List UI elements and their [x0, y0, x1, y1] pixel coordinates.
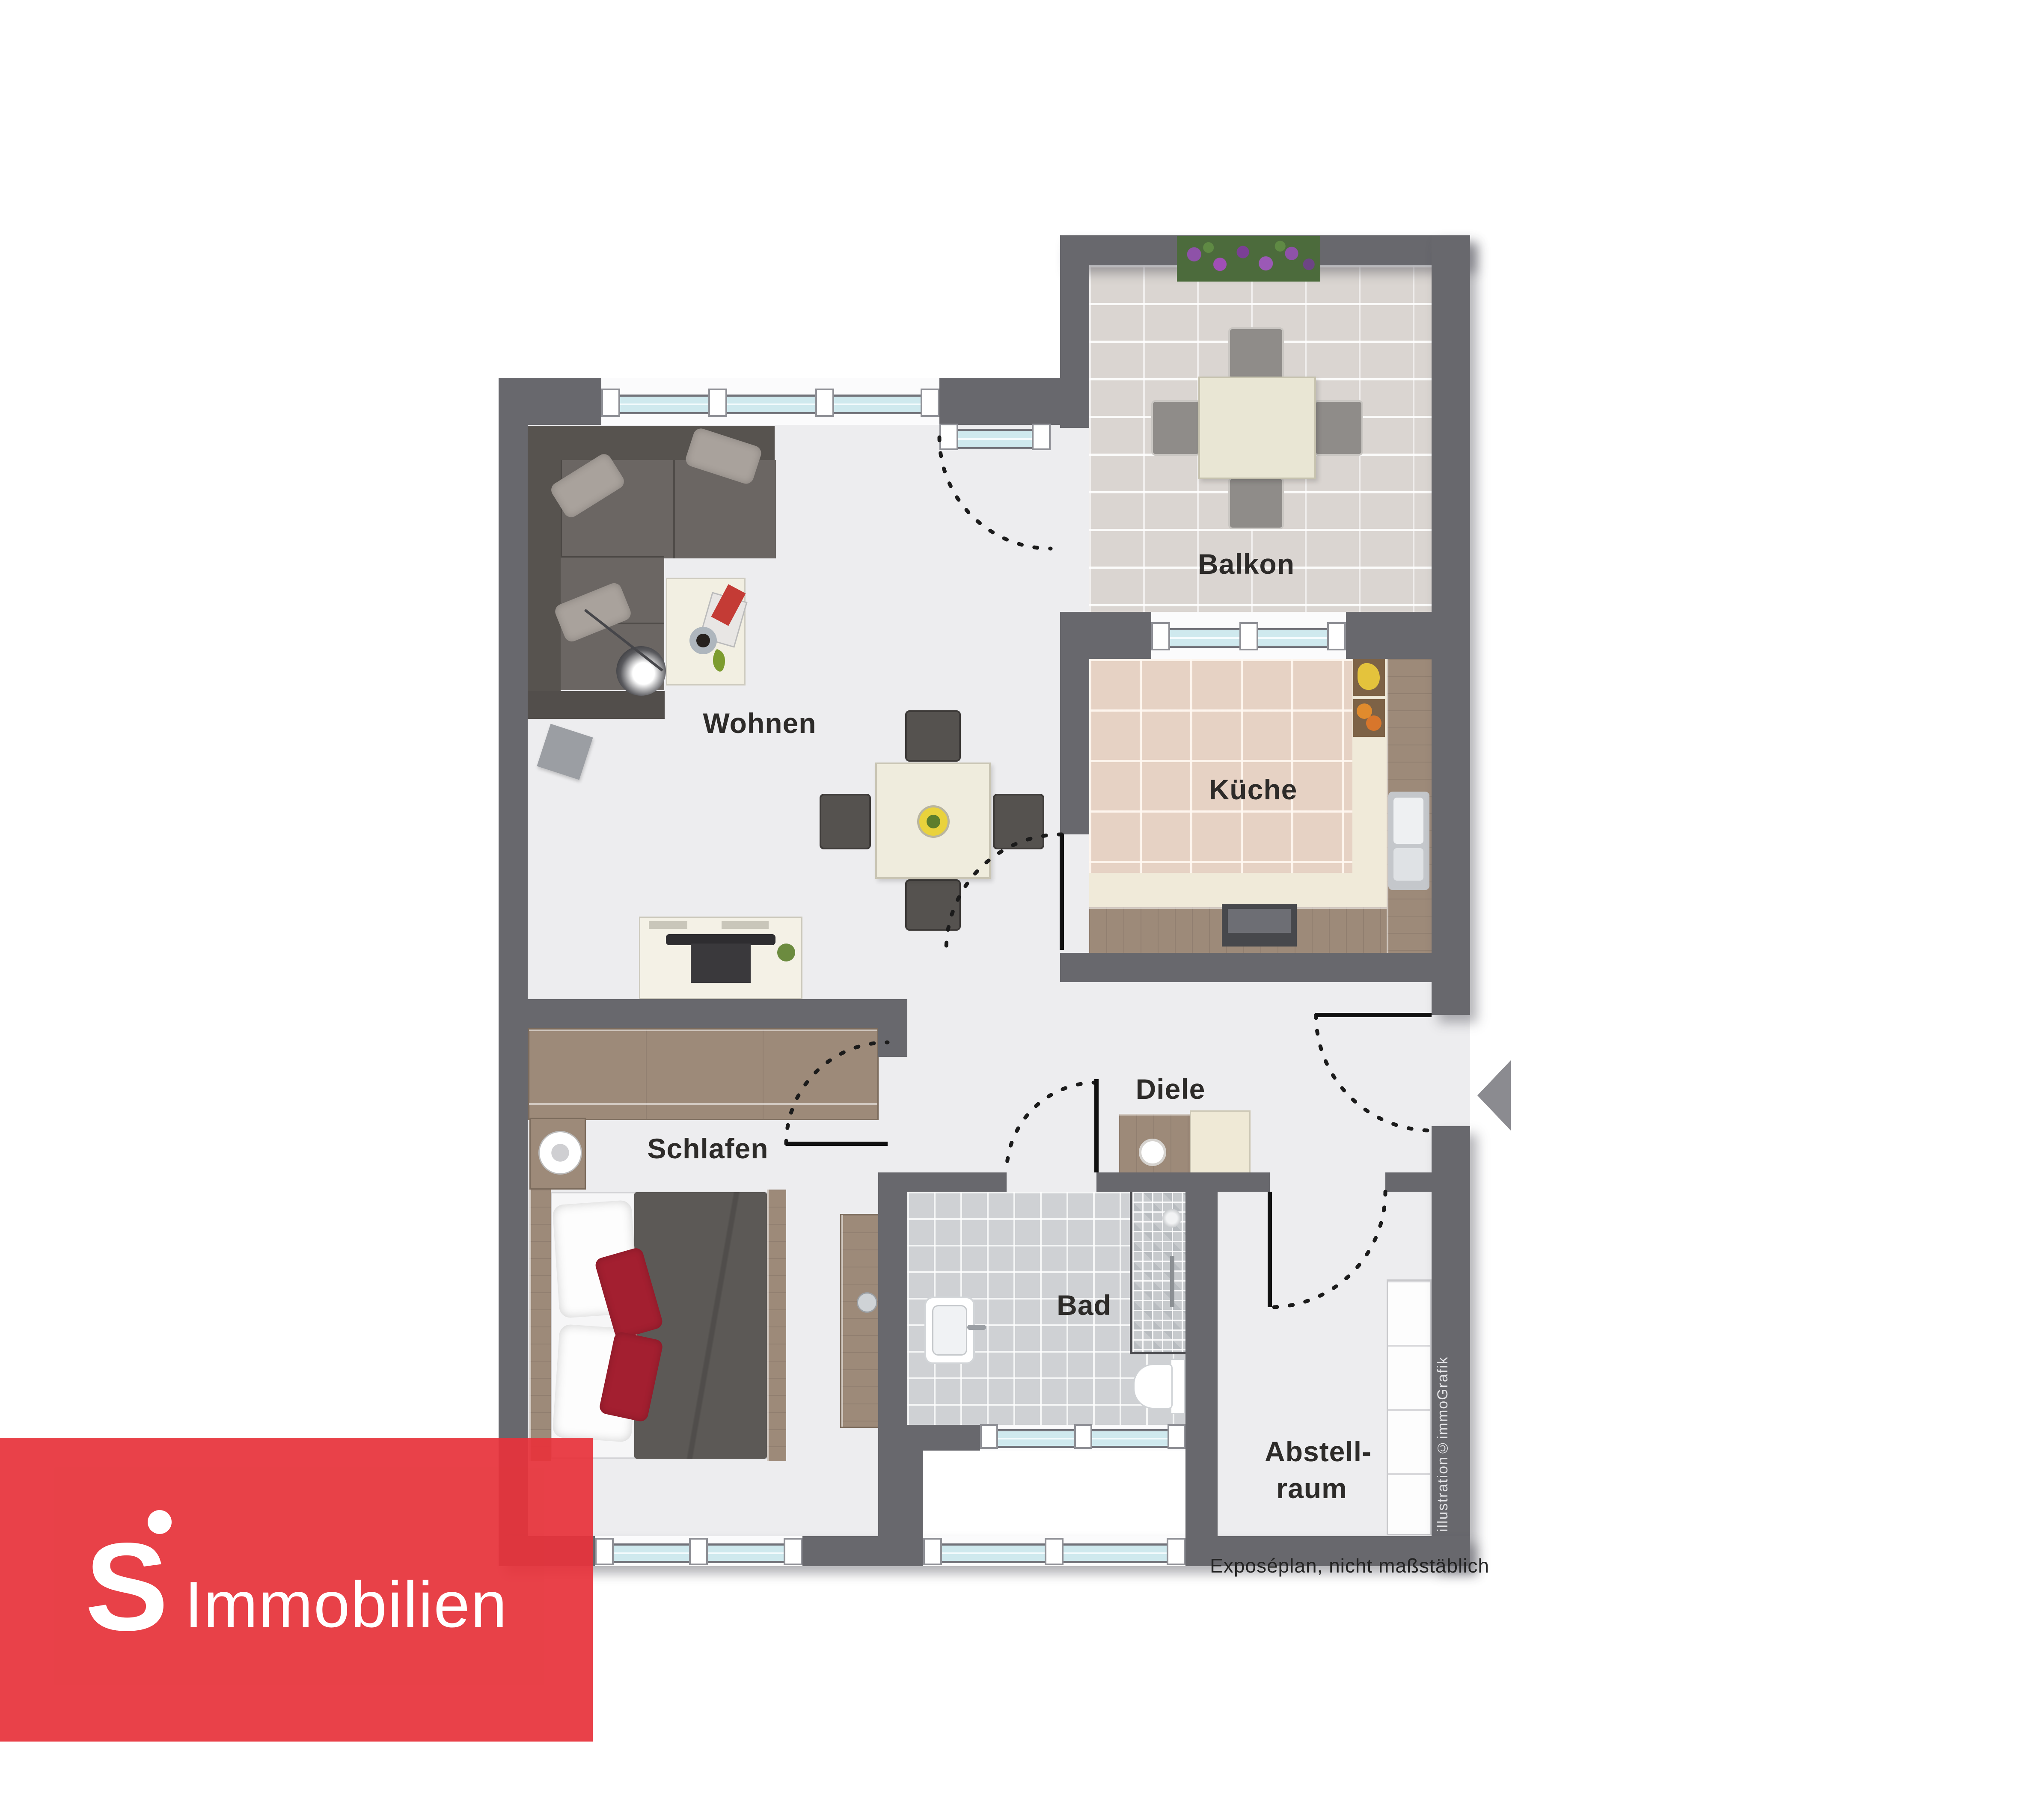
window-frame: [1168, 1424, 1185, 1449]
room-label-bad: Bad: [1057, 1289, 1111, 1321]
kitchen-floor: [1089, 659, 1352, 873]
entry-threshold: [1432, 1015, 1470, 1126]
room-label-wohnen: Wohnen: [703, 707, 816, 739]
window-frame: [939, 424, 958, 450]
wall-right-upper: [1432, 235, 1470, 1015]
sparkasse-s-icon: S: [85, 1538, 169, 1636]
wall-balcony-kitchen-right: [1346, 612, 1432, 659]
illustration-credit: illustration©immoGrafik: [1435, 1262, 1451, 1532]
window-frame: [815, 389, 834, 417]
room-label-abstellraum-1: Abstell-: [1265, 1435, 1372, 1468]
window-frame: [980, 1424, 998, 1449]
kitchen-sink: [1388, 792, 1429, 890]
bed: [529, 1190, 786, 1461]
wall-bad-abstell: [1185, 1192, 1218, 1536]
bathroom-sink: [924, 1297, 975, 1364]
nightstand: [529, 1118, 586, 1190]
wall-balcony-kitchen-left: [1089, 612, 1151, 659]
dining-table-set: [820, 710, 1046, 933]
wall-diele-bad-left: [878, 1172, 1007, 1192]
room-label-balkon: Balkon: [1198, 548, 1295, 580]
window-frame: [1074, 1424, 1092, 1449]
plan-caption: Exposéplan, nicht maßstäblich: [1113, 1554, 1489, 1577]
room-label-abstellraum-2: raum: [1276, 1472, 1347, 1504]
wall-balcony-left: [1060, 235, 1089, 428]
wall-diele-bad-right: [1096, 1172, 1270, 1192]
tv-sideboard: [639, 917, 802, 999]
logo-wordmark: Immobilien: [184, 1574, 508, 1635]
sparkasse-logo: S Immobilien: [85, 1538, 508, 1636]
room-label-diele: Diele: [1136, 1073, 1206, 1105]
floor-lamp: [531, 642, 676, 783]
storage-shelf: [1387, 1279, 1432, 1535]
wall-niche-left: [878, 1425, 923, 1566]
window-frame: [1045, 1538, 1064, 1565]
wall-wohnen-schlafen: [499, 999, 878, 1028]
wall-left: [499, 378, 528, 1566]
window-frame: [784, 1538, 802, 1565]
wall-pillar-schlafen-door: [878, 999, 907, 1057]
window-frame: [921, 389, 939, 417]
window-frame: [923, 1538, 942, 1565]
window-frame: [595, 1538, 614, 1565]
window-frame: [601, 389, 620, 417]
window-frame: [1032, 424, 1051, 450]
wall-kitchen-left: [1060, 612, 1089, 834]
fruit-crate-bananas: [1353, 658, 1385, 696]
logo-dot-icon: [148, 1510, 172, 1534]
hall-sideboard: [1119, 1110, 1251, 1174]
window-frame: [1239, 622, 1258, 650]
toilet: [1133, 1359, 1185, 1414]
wall-top-mid: [939, 378, 1060, 425]
kitchen-stove: [1222, 904, 1297, 947]
window-frame: [708, 389, 727, 417]
balcony-table-set: [1151, 327, 1363, 528]
window-wohnen: [601, 395, 939, 414]
room-label-kueche: Küche: [1209, 773, 1298, 806]
window-frame: [1327, 622, 1346, 650]
window-frame: [689, 1538, 708, 1565]
flower-box: [1177, 236, 1320, 282]
brand-banner: S Immobilien: [0, 1438, 593, 1742]
floor-plan-page: Wohnen Balkon Küche Schlafen Diele Bad A…: [0, 0, 2044, 1816]
entrance-arrow-icon: [1477, 1060, 1511, 1131]
window-frame: [1151, 622, 1170, 650]
room-label-schlafen: Schlafen: [647, 1132, 768, 1165]
coffee-table: [666, 578, 746, 685]
wall-abstell-pillar: [1385, 1172, 1432, 1192]
logo-s-glyph: S: [85, 1517, 169, 1656]
wall-kitchen-bottom: [1060, 953, 1432, 982]
fruit-crate-oranges: [1353, 699, 1385, 737]
wardrobe: [528, 1028, 879, 1120]
shower: [1130, 1192, 1185, 1354]
